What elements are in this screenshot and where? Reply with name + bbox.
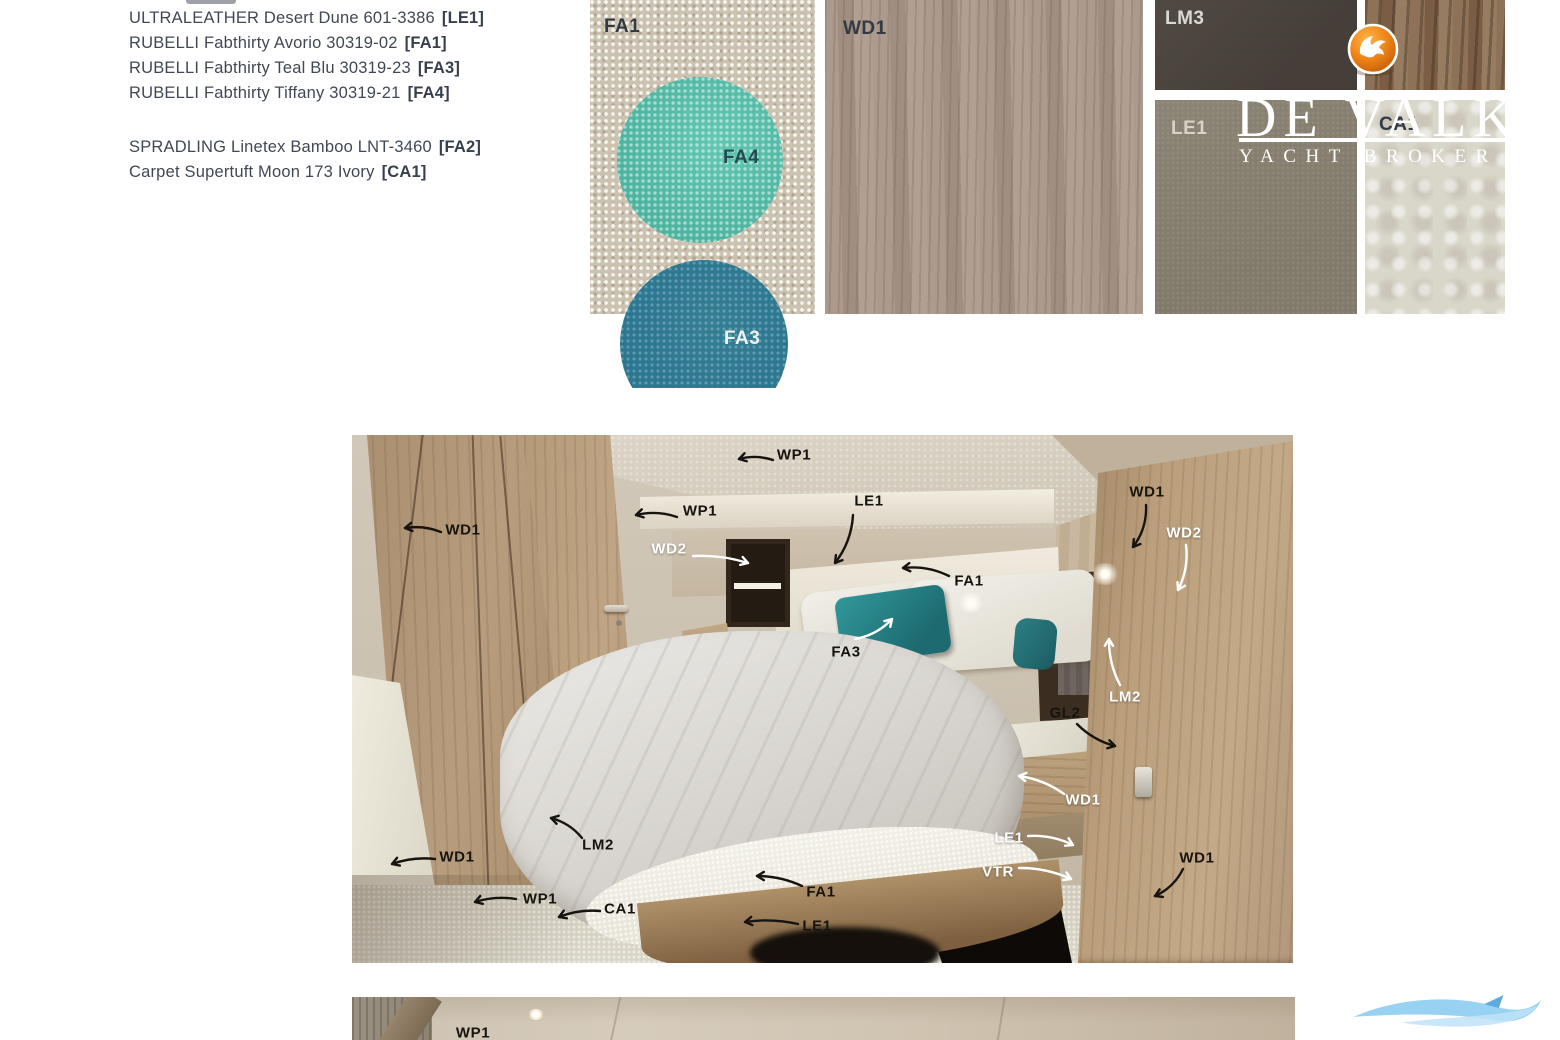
material-callout-fa1: FA1: [954, 573, 983, 590]
material-name: RUBELLI Fabthirty Tiffany 30319-21: [129, 84, 401, 102]
material-callout-vtr: VTR: [982, 864, 1014, 881]
material-callout-ca1: CA1: [604, 901, 636, 918]
brand-rule: [1239, 138, 1505, 142]
swatch-label-fa3: FA3: [724, 328, 760, 350]
material-callout-wd1: WD1: [1129, 484, 1164, 501]
material-code: [FA1]: [405, 34, 447, 52]
swatch-label-le1: LE1: [1171, 118, 1207, 140]
material-callout-wp1: WP1: [777, 447, 811, 464]
material-name: SPRADLING Linetex Bamboo LNT-3460: [129, 138, 432, 156]
material-name: RUBELLI Fabthirty Avorio 30319-02: [129, 34, 398, 52]
material-row: Carpet Supertuft Moon 173 Ivory[CA1]: [129, 160, 484, 185]
render2-recessed-light: [528, 1009, 544, 1020]
material-callout-wd1: WD1: [439, 849, 474, 866]
material-callout-wd1: WD1: [1065, 792, 1100, 809]
swatch-label-lm3: LM3: [1165, 8, 1205, 30]
render-reading-light: [958, 593, 984, 613]
material-row: RUBELLI Fabthirty Avorio 30319-02[FA1]: [129, 31, 484, 56]
devalk-falcon-icon: [1346, 23, 1400, 77]
material-callout-wd2: WD2: [651, 541, 686, 558]
interior-render-main: WP1WD1WP1WD2LE1WD1WD2FA1FA3LM2GL2WD1LE1V…: [352, 435, 1293, 963]
swatch-label-fa4: FA4: [723, 147, 759, 169]
swatch-fa3-fabric-circle: FA3: [620, 260, 788, 428]
material-callout-lm2: LM2: [1109, 689, 1141, 706]
material-code: [CA1]: [382, 163, 427, 181]
render2-shade: [352, 997, 1295, 1040]
wardrobe-seam: [472, 435, 491, 915]
brochure-page: ULTRALEATHER Desert Dune 601-3386[LE1]RU…: [0, 0, 1560, 1040]
material-callout-lm2: LM2: [582, 837, 614, 854]
material-row: ULTRALEATHER Desert Dune 601-3386[LE1]: [129, 6, 484, 31]
material-callout-gl2: GL2: [1050, 705, 1081, 722]
material-name: Carpet Supertuft Moon 173 Ivory: [129, 163, 375, 181]
material-callout-wd2: WD2: [1166, 525, 1201, 542]
materials-list: ULTRALEATHER Desert Dune 601-3386[LE1]RU…: [129, 6, 484, 185]
render-door-hinge: [1135, 767, 1152, 797]
swatch-label-wd1: WD1: [843, 18, 887, 40]
material-callout-wp1: WP1: [456, 1025, 490, 1040]
material-callout-wp1: WP1: [683, 503, 717, 520]
material-callout-wd1: WD1: [445, 522, 480, 539]
material-callout-le1: LE1: [802, 918, 831, 935]
material-callout-le1: LE1: [994, 830, 1023, 847]
swatch-wd1-wood: WD1: [825, 0, 1143, 314]
swatch-lm3-laminate: LM3: [1155, 0, 1357, 90]
render-door-handle: [604, 605, 628, 612]
material-row: SPRADLING Linetex Bamboo LNT-3460[FA2]: [129, 135, 484, 160]
swatch-fa4-fabric-circle: FA4: [617, 77, 783, 243]
watermark-boat-icon: [1348, 986, 1548, 1036]
material-callout-wp1: WP1: [523, 891, 557, 908]
render-reading-light: [1090, 563, 1120, 585]
material-callout-wd1: WD1: [1179, 850, 1214, 867]
material-row: RUBELLI Fabthirty Tiffany 30319-21[FA4]: [129, 81, 484, 106]
material-row: RUBELLI Fabthirty Teal Blu 30319-23[FA3]: [129, 56, 484, 81]
cropped-text-remnant: [186, 0, 236, 4]
material-callout-fa3: FA3: [831, 644, 860, 661]
material-name: ULTRALEATHER Desert Dune 601-3386: [129, 9, 435, 27]
material-code: [FA2]: [439, 138, 481, 156]
material-code: [FA3]: [418, 59, 460, 77]
interior-render-secondary: WP1: [352, 997, 1295, 1040]
swatch-label-fa1: FA1: [604, 16, 640, 38]
brand-tagline: YACHT BROKER: [1239, 146, 1498, 168]
render-door-lock: [616, 620, 622, 626]
render-left-niche-shelf: [734, 583, 781, 589]
material-name: RUBELLI Fabthirty Teal Blu 30319-23: [129, 59, 411, 77]
material-callout-le1: LE1: [854, 493, 883, 510]
material-code: [LE1]: [442, 9, 484, 27]
material-code: [FA4]: [408, 84, 450, 102]
render-teal-bolster: [1012, 617, 1058, 670]
material-callout-fa1: FA1: [806, 884, 835, 901]
